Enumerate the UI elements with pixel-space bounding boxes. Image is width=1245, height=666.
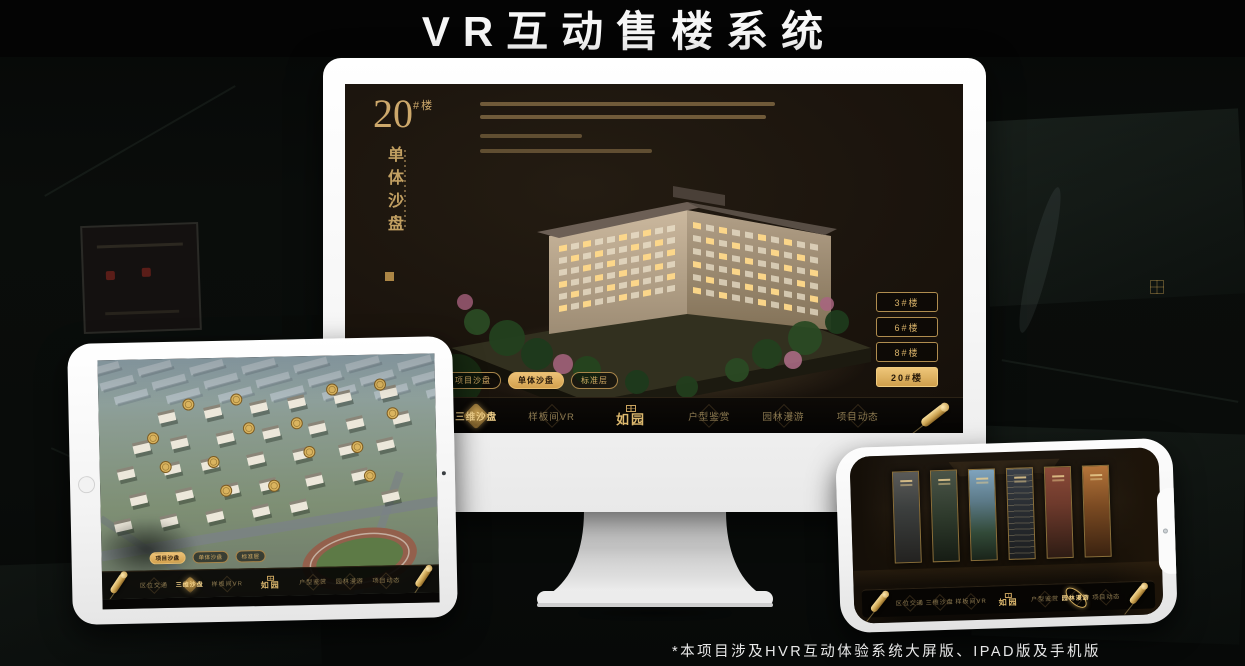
building-badge[interactable] (364, 470, 375, 481)
ipad-tabs: 项目沙盘单体沙盘标准层 (149, 550, 265, 564)
nav-item[interactable]: 样板间VR (528, 409, 575, 423)
bg-river (1012, 185, 1068, 335)
building-badge[interactable] (183, 399, 194, 410)
nav-item[interactable]: 样板间VR (211, 578, 243, 588)
nav-item[interactable]: 区位交通 (896, 598, 924, 608)
brand-seal-icon (626, 405, 636, 412)
nav-item[interactable]: 区位交通 (140, 580, 168, 590)
tab[interactable]: 标准层 (235, 550, 265, 563)
building-badge[interactable] (147, 433, 158, 444)
nav-items-right: 户型鉴赏园林漫游项目动态 (1028, 591, 1123, 603)
nav-item[interactable]: 园林漫游 (1062, 592, 1090, 602)
brand-logo: 如园 (998, 592, 1018, 607)
title-band: VR互动售楼系统 (0, 0, 1245, 57)
gold-seal (385, 272, 394, 281)
scroll-handle-icon[interactable] (919, 403, 948, 429)
ipad-screen: 项目沙盘单体沙盘标准层 区位交通三维沙盘样板间VR 如园 户型鉴赏园林漫游项目动… (97, 353, 439, 609)
building-number: 20 (373, 91, 413, 136)
ipad: 项目沙盘单体沙盘标准层 区位交通三维沙盘样板间VR 如园 户型鉴赏园林漫游项目动… (67, 336, 458, 625)
panorama-card[interactable] (1044, 466, 1074, 559)
brand-logo-text: 如园 (616, 413, 646, 426)
tab[interactable]: 单体沙盘 (192, 551, 228, 564)
nav-item[interactable]: 项目动态 (372, 575, 400, 585)
building-badge[interactable] (208, 456, 219, 467)
phone: 区位交通三维沙盘样板间VR 如园 户型鉴赏园林漫游项目动态 (835, 438, 1178, 633)
nav-item[interactable]: 园林漫游 (763, 409, 805, 423)
tab[interactable]: 项目沙盘 (445, 372, 501, 389)
nav-item[interactable]: 三维沙盘 (455, 409, 497, 423)
building-badge[interactable] (291, 418, 302, 429)
bg-developer-logo (1150, 280, 1164, 294)
nav-item[interactable]: 园林漫游 (336, 576, 364, 586)
building-badge[interactable] (221, 485, 232, 496)
brand-logo-text: 如园 (998, 598, 1018, 607)
vertical-title: 单体沙盘 (381, 146, 405, 238)
camera-icon (442, 471, 446, 475)
bg-certificate-frame (80, 222, 202, 334)
building-number-suffix: #楼 (413, 100, 434, 112)
nav-item[interactable]: 项目动态 (837, 409, 879, 423)
bg-road-line (44, 85, 236, 197)
panorama-card[interactable] (1082, 465, 1112, 558)
scroll-handle-icon[interactable] (1128, 584, 1147, 606)
brand-logo: 如园 (616, 405, 646, 426)
panorama-card[interactable] (930, 470, 960, 563)
nav-items-left: 区位交通三维沙盘样板间VR (894, 596, 989, 608)
scroll-handle-icon[interactable] (414, 566, 432, 588)
vertical-subtitle-decor (404, 150, 406, 230)
bg-road-line (1002, 359, 1239, 403)
building-badge[interactable] (326, 384, 337, 395)
nav-items-left: 区位交通三维沙盘样板间VR (132, 578, 251, 589)
building-badge[interactable] (160, 461, 171, 472)
front-camera-icon (1163, 528, 1168, 533)
monitor-stand (535, 511, 775, 613)
phone-screen: 区位交通三维沙盘样板间VR 如园 户型鉴赏园林漫游项目动态 (849, 447, 1163, 624)
building-badge[interactable] (231, 394, 242, 405)
nav-item[interactable]: 户型鉴赏 (299, 577, 327, 587)
panorama-card[interactable] (968, 468, 998, 561)
building-button[interactable]: 20#楼 (876, 367, 938, 387)
building-badge[interactable] (268, 480, 279, 491)
sandtable-tabs: 项目沙盘 单体沙盘 标准层 (445, 372, 618, 389)
tab[interactable]: 项目沙盘 (149, 552, 185, 565)
poster-canvas: VR互动售楼系统 20#楼 单体沙盘 (0, 0, 1245, 666)
building-heading: 20#楼 (373, 94, 434, 134)
tab[interactable]: 标准层 (571, 372, 618, 389)
brand-seal-icon (1005, 592, 1012, 597)
footnote: *本项目涉及HVR互动体验系统大屏版、IPAD版及手机版 (672, 640, 1101, 661)
nav-item[interactable]: 三维沙盘 (176, 579, 204, 589)
brand-seal-icon (267, 575, 274, 580)
building-badge[interactable] (374, 379, 385, 390)
building-selector: 3#楼 6#楼 8#楼 20#楼 (876, 292, 938, 387)
brand-logo: 如园 (260, 575, 280, 589)
home-button[interactable] (78, 476, 95, 493)
notch (1157, 487, 1177, 573)
building-badge[interactable] (387, 408, 398, 419)
building-button[interactable]: 6#楼 (876, 317, 938, 337)
nav-item[interactable]: 户型鉴赏 (688, 409, 730, 423)
panorama-card[interactable] (892, 471, 922, 564)
nav-item[interactable]: 样板间VR (955, 596, 987, 606)
nav-items-right: 户型鉴赏园林漫游项目动态 (291, 575, 410, 586)
bg-photo-top-right (980, 108, 1245, 306)
nav-item[interactable]: 项目动态 (1092, 591, 1120, 601)
nav-item[interactable]: 户型鉴赏 (1031, 593, 1059, 603)
building-badge[interactable] (352, 441, 363, 452)
building-badge[interactable] (243, 423, 254, 434)
page-title: VR互动售楼系统 (409, 0, 836, 59)
scroll-handle-icon[interactable] (869, 592, 888, 614)
building-button[interactable]: 8#楼 (876, 342, 938, 362)
building-button[interactable]: 3#楼 (876, 292, 938, 312)
building-badge[interactable] (304, 446, 315, 457)
tab[interactable]: 单体沙盘 (508, 372, 564, 389)
scroll-handle-icon[interactable] (109, 572, 127, 594)
brand-logo-text: 如园 (261, 581, 281, 589)
nav-items-right: 户型鉴赏园林漫游项目动态 (656, 409, 911, 423)
nav-item[interactable]: 三维沙盘 (925, 597, 953, 607)
panorama-card[interactable] (1006, 467, 1036, 560)
